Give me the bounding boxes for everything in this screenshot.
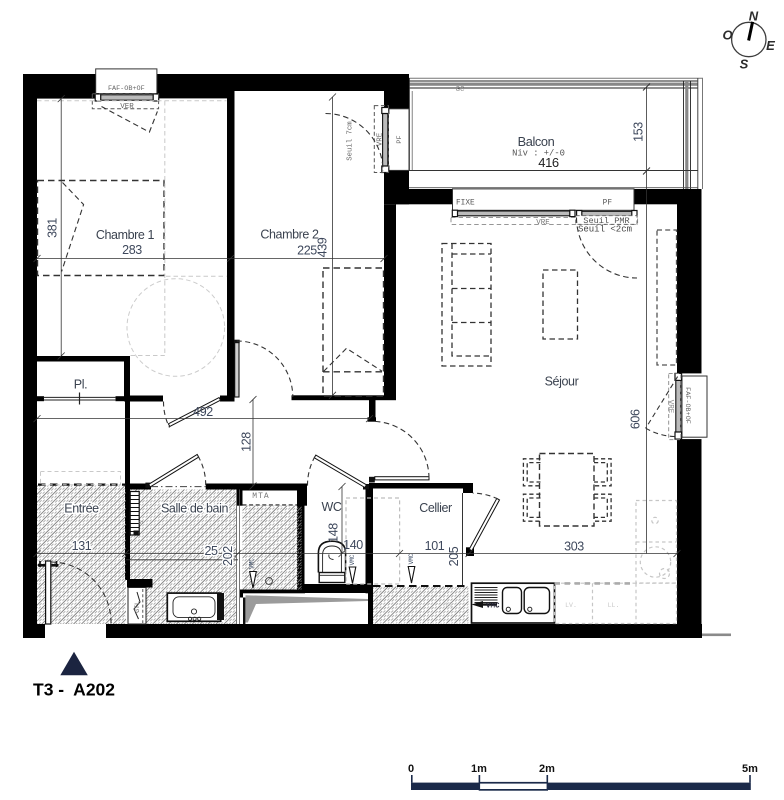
svg-text:148: 148	[327, 523, 341, 543]
svg-text:PF: PF	[603, 200, 613, 208]
svg-text:S: S	[138, 520, 145, 524]
svg-text:FIXE: FIXE	[456, 200, 475, 208]
svg-text:2m: 2m	[539, 763, 555, 775]
svg-text:GTL: GTL	[134, 601, 141, 613]
svg-text:225: 225	[297, 244, 317, 258]
svg-text:Salle de bain: Salle de bain	[161, 502, 229, 516]
svg-text:381: 381	[46, 218, 60, 238]
svg-text:131: 131	[72, 539, 92, 553]
svg-text:0: 0	[408, 763, 414, 775]
svg-text:VRE: VRE	[536, 219, 550, 227]
svg-text:101: 101	[425, 539, 445, 553]
svg-text:FAF-OB+OF: FAF-OB+OF	[683, 387, 691, 424]
svg-text:Chambre 1: Chambre 1	[96, 228, 155, 242]
svg-text:492: 492	[193, 405, 213, 419]
svg-text:VMC: VMC	[249, 558, 256, 569]
svg-text:S: S	[740, 57, 749, 72]
svg-text:Chambre 2: Chambre 2	[260, 228, 319, 242]
svg-text:303: 303	[564, 540, 584, 554]
svg-text:VRE: VRE	[377, 132, 385, 146]
svg-text:FAF-OB+OF: FAF-OB+OF	[108, 85, 145, 93]
svg-text:Pl.: Pl.	[74, 378, 87, 392]
svg-text:Cellier: Cellier	[419, 501, 452, 515]
svg-text:Entrée: Entrée	[64, 502, 99, 516]
svg-text:1m: 1m	[471, 763, 487, 775]
svg-text:Seuil 7cm: Seuil 7cm	[346, 121, 354, 160]
svg-text:WC: WC	[321, 500, 341, 514]
svg-text:202: 202	[221, 546, 235, 566]
svg-text:140: 140	[343, 538, 363, 552]
svg-text:GC: GC	[455, 86, 465, 94]
svg-text:439: 439	[316, 237, 330, 257]
svg-text:5m: 5m	[742, 763, 758, 775]
svg-text:LL: LL	[445, 602, 453, 609]
svg-text:O: O	[722, 28, 732, 43]
svg-text:N: N	[749, 9, 759, 24]
svg-text:153: 153	[631, 122, 645, 142]
svg-text:Seuil <2cm: Seuil <2cm	[578, 225, 632, 235]
svg-text:VMC: VMC	[408, 553, 415, 564]
svg-text:Balcon: Balcon	[518, 134, 555, 149]
svg-text:205: 205	[447, 546, 461, 566]
svg-text:VMC: VMC	[486, 603, 500, 611]
svg-text:VMC: VMC	[349, 554, 356, 565]
svg-text:606: 606	[628, 409, 642, 429]
svg-text:Séjour: Séjour	[545, 375, 579, 389]
svg-text:128: 128	[240, 432, 254, 452]
svg-text:416: 416	[538, 155, 559, 170]
svg-text:LL.: LL.	[608, 602, 620, 609]
svg-text:MTA: MTA	[252, 492, 269, 501]
svg-text:LV.: LV.	[565, 602, 577, 609]
svg-text:25: 25	[204, 544, 218, 558]
svg-text:VRE: VRE	[666, 400, 674, 414]
svg-text:PF: PF	[396, 135, 404, 143]
svg-text:283: 283	[122, 243, 142, 257]
svg-text:VER: VER	[120, 103, 134, 111]
svg-text:T3 - A202: T3 - A202	[33, 680, 115, 700]
svg-text:E: E	[766, 38, 775, 53]
